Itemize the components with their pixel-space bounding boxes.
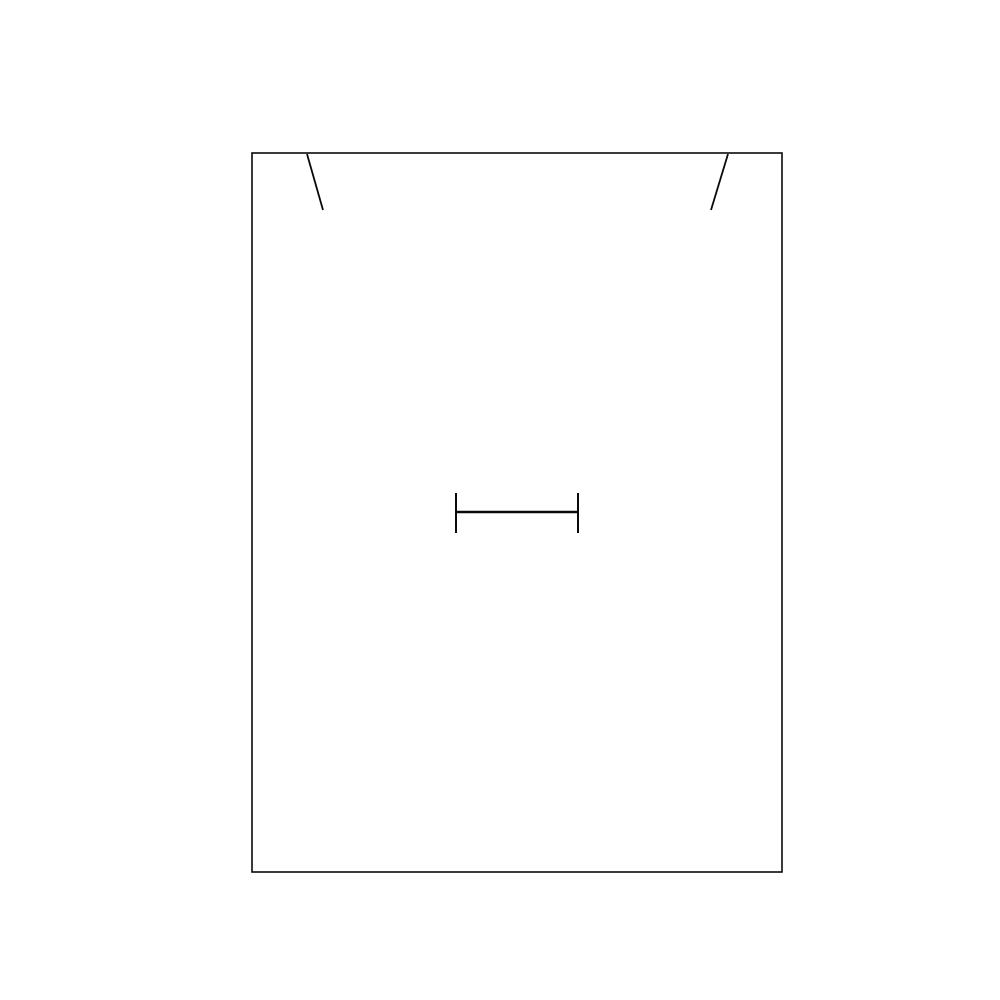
drawing-page — [0, 0, 1000, 1000]
line-drawing-canvas — [0, 0, 1000, 1000]
top-right-notch-line — [711, 154, 728, 210]
top-left-notch-line — [307, 154, 323, 210]
